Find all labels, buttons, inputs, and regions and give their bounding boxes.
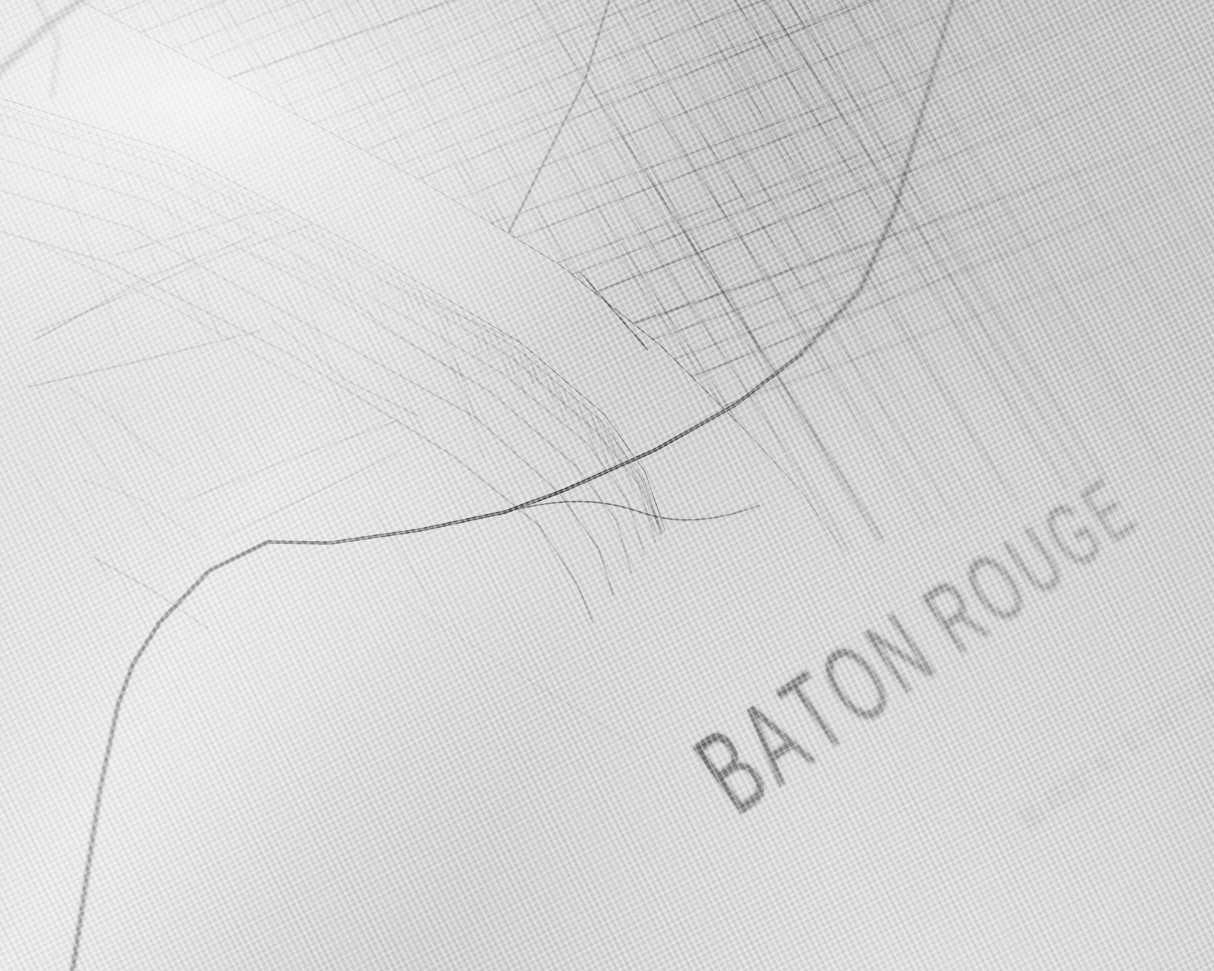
canvas-print-photo: BATONROUGE 30.4515° N / 91.1871° W [0,0,1214,971]
